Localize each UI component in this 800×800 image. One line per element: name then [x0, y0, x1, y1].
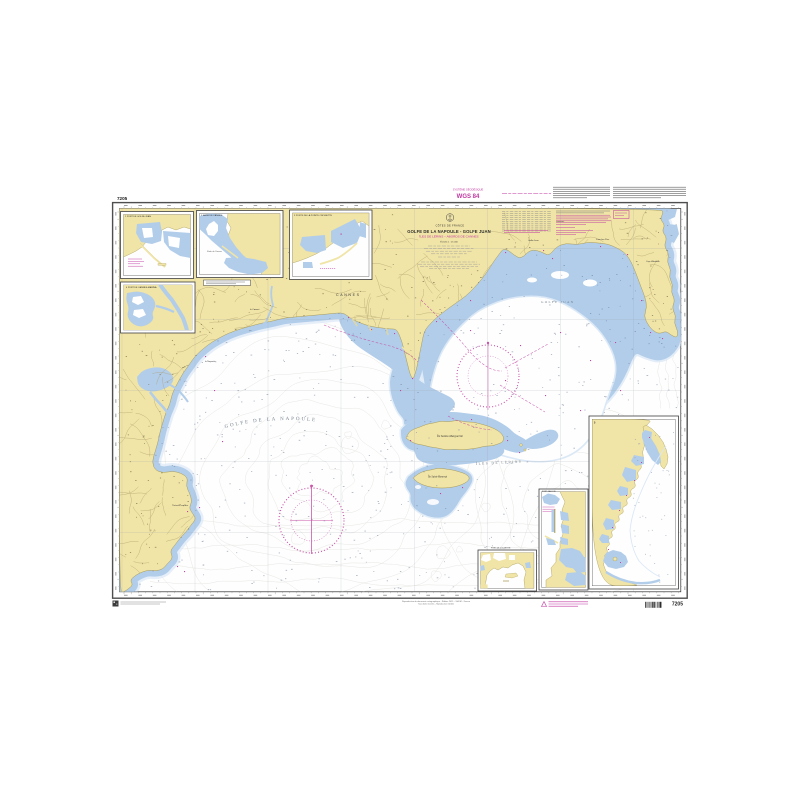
svg-text:2 RADE DE CANNES: 2 RADE DE CANNES — [201, 214, 223, 217]
svg-text:Juan-les-Pins: Juan-les-Pins — [596, 239, 610, 241]
svg-text:Île Sainte-Marguerite: Île Sainte-Marguerite — [436, 433, 464, 438]
svg-text:ÎLES DE LÉRINS – ABORDS DE CAN: ÎLES DE LÉRINS – ABORDS DE CANNES — [418, 234, 478, 239]
svg-text:Tous droits réservés – Reprodu: Tous droits réservés – Reproduction inte… — [418, 603, 454, 606]
svg-text:GOLFE JUAN: GOLFE JUAN — [541, 300, 574, 304]
svg-text:7205: 7205 — [672, 601, 683, 607]
svg-text:4 PORT DE CANNES-MARINA: 4 PORT DE CANNES-MARINA — [126, 286, 157, 289]
svg-text:Reproduction du document carto: Reproduction du document cartographique … — [402, 600, 471, 603]
svg-text:le Cannet: le Cannet — [250, 308, 260, 311]
svg-text:GOLFE DE LA NAPOULE - GOLFE JU: GOLFE DE LA NAPOULE - GOLFE JUAN — [407, 229, 491, 234]
svg-text:CÔTES DE FRANCE: CÔTES DE FRANCE — [436, 225, 465, 228]
svg-text:Rade de Cannes: Rade de Cannes — [207, 251, 222, 253]
svg-text:CANNES: CANNES — [336, 293, 361, 297]
svg-text:PORT DE L’OLIVETTE: PORT DE L’OLIVETTE — [491, 548, 511, 550]
svg-text:Île Saint-Honorat: Île Saint-Honorat — [427, 476, 447, 479]
svg-text:Cap d'Antibes: Cap d'Antibes — [646, 260, 660, 263]
svg-text:PORT GALLICE: PORT GALLICE — [542, 490, 556, 493]
svg-text:3 PORTS DE LA POINTE CROISET: 3 PORTS DE LA POINTE CROISETTE — [294, 214, 333, 217]
svg-text:Échelle 1 : 25 000: Échelle 1 : 25 000 — [440, 241, 458, 244]
svg-text:1 PORT DE GOLFE-JUAN: 1 PORT DE GOLFE-JUAN — [125, 215, 151, 218]
svg-text:7205: 7205 — [117, 196, 128, 201]
svg-text:la Napoule: la Napoule — [205, 361, 216, 363]
svg-text:Théoule-sur-Mer: Théoule-sur-Mer — [172, 504, 188, 507]
svg-text:Golfe-Juan: Golfe-Juan — [528, 240, 539, 242]
svg-text:WGS 84: WGS 84 — [457, 194, 480, 200]
